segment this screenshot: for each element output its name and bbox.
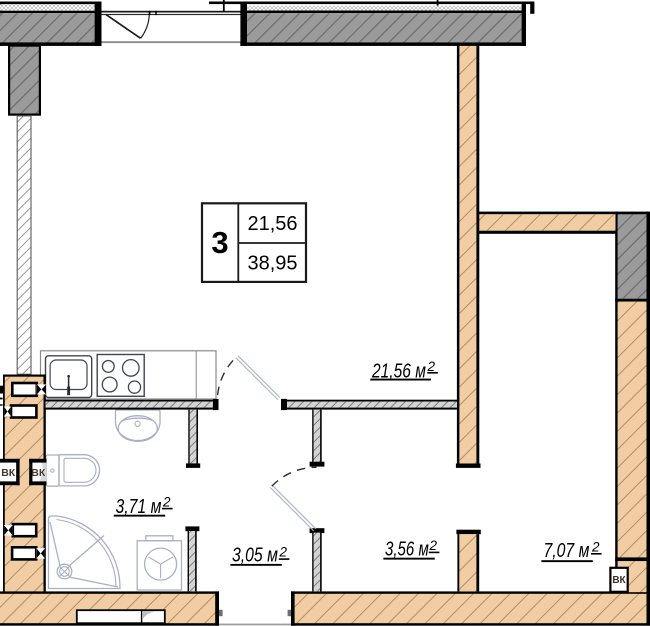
svg-text:2: 2 [429,538,438,553]
svg-text:ВК: ВК [1,467,16,479]
svg-text:7,07 м: 7,07 м [544,538,590,562]
svg-text:38,95: 38,95 [247,253,297,275]
svg-text:2: 2 [279,545,288,560]
svg-text:3,05 м: 3,05 м [232,542,278,566]
svg-text:3,71 м: 3,71 м [116,494,162,518]
svg-text:3,56 м: 3,56 м [385,537,429,560]
svg-text:3: 3 [211,225,228,260]
svg-text:ВК: ВК [31,467,46,479]
svg-text:2: 2 [591,540,600,555]
svg-text:2: 2 [427,359,436,374]
svg-text:21,56: 21,56 [247,213,297,235]
svg-text:2: 2 [162,495,171,510]
svg-text:ВК: ВК [612,575,626,586]
